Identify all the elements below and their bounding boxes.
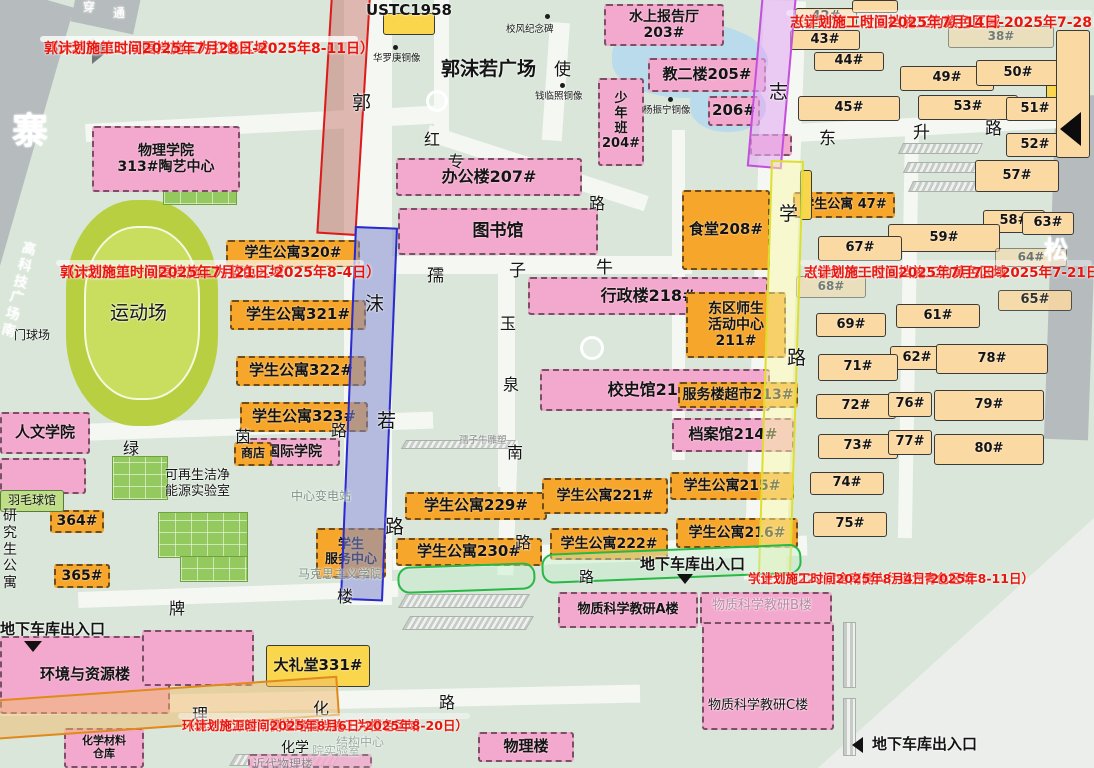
building-renwen-xueyuan: 人文学院 [0, 412, 90, 454]
building-gongyu-221: 学生公寓221# [542, 478, 668, 514]
building-gongyu-321: 学生公寓321# [230, 300, 366, 330]
sports-court [158, 512, 248, 558]
building-wuzhi-kexue-c-lou [702, 622, 834, 730]
road-lou: 楼 [337, 587, 353, 606]
building-shuishang-baogaoting-203: 水上报告厅 203# [604, 4, 724, 46]
building-wulilou: 物理楼 [478, 732, 574, 762]
construction-annotation-yellow: 志学路第一段围挡施工为黄色区域 （计划施工时间2025年7月7日-2025年7-… [800, 260, 1092, 266]
statue-marker [668, 97, 673, 102]
annotation-line: （计划施工时间2025年7月7日-2025年7-21日） [804, 263, 1094, 284]
road-hong: 红 [424, 130, 440, 149]
building-bld-75: 75# [813, 512, 887, 537]
road-guo: 郭 [352, 92, 371, 115]
building-bld-71: 71# [818, 354, 898, 381]
building-bld-364: 364# [50, 510, 104, 533]
road-char-zhai: 寨 [12, 110, 48, 153]
road-mo: 沫 [365, 293, 384, 316]
building-jiaoerlou-205: 教二楼205# [648, 58, 766, 92]
road-yin: 茵 [235, 427, 251, 446]
statue-marker [560, 83, 565, 88]
building-bld-53: 53# [918, 95, 1018, 120]
building-bld-44: 44# [814, 52, 884, 71]
road-dong: 东 [819, 129, 836, 149]
road-lu-8: 路 [439, 693, 455, 712]
annotation-line: （计划施工时间2025年7月28日-2025年8-11日） [44, 39, 374, 61]
road-quan: 泉 [503, 375, 519, 394]
building-gongyu-322: 学生公寓322# [236, 356, 366, 386]
zhongxin-biandianzhan: 中心变电站 [291, 489, 351, 503]
hualuogeng-tongxiang: 华罗庚铜像 [373, 53, 421, 64]
cheku-chukou-center: 地下车库出入口 [640, 555, 745, 573]
entrance-arrow-east [1060, 112, 1081, 146]
road-strip [542, 22, 570, 141]
road-lu-6: 路 [787, 347, 806, 370]
road-shi: 使 [554, 60, 571, 80]
building-bld-59: 59# [888, 224, 1000, 252]
annotation-line: （计划施工时间2025年7月14日-2025年7-28日） [790, 13, 1094, 35]
road-lu-7: 路 [985, 119, 1002, 139]
construction-annotation-orange: 环境与资源楼南侧道路围挡施工为橙色区域 （计划施工时间2025年8月6日-202… [178, 713, 470, 719]
road-lu-4: 路 [579, 568, 594, 586]
building-bld-65: 65# [998, 290, 1072, 311]
building-wuzhi-kexue-a-lou: 物质科学教研A楼 [558, 592, 698, 628]
building-bld-78: 78# [936, 344, 1048, 374]
statue-marker [393, 45, 398, 50]
ustc1958-label: USTC1958 [366, 1, 452, 19]
plaza-circle [580, 336, 604, 360]
building-shitang-208: 食堂208# [682, 190, 770, 270]
huaxueyuan-1: 化学 [281, 740, 309, 757]
building-bangonglou-207: 办公楼207# [396, 158, 582, 196]
jindai-wulilou: 近代物理楼 [253, 757, 313, 768]
road-ruo: 若 [377, 410, 396, 433]
road-lv: 绿 [123, 439, 139, 458]
annotation-line: （计划施工时间2025年8月6日-2025年8-20日） [182, 716, 468, 735]
building-bld-57: 57# [975, 160, 1059, 192]
xiaofeng-jinianbei: 校风纪念碑 [506, 24, 554, 35]
building-bld-67: 67# [818, 236, 902, 261]
road-zhi: 志 [769, 81, 788, 104]
construction-annotation-blue: 郭沫若路第一段围挡施工为蓝色区域 （计划施工时间2025年7月21日-2025年… [56, 260, 364, 266]
building-bld-80: 80# [934, 434, 1044, 465]
road-xue: 学 [779, 203, 798, 226]
building-wuli-xueyuan-313: 物理学院 313#陶艺中心 [92, 126, 240, 192]
road-pai: 牌 [169, 599, 185, 618]
building-tushuguan: 图书馆 [398, 208, 598, 255]
yundongchang: 运动场 [110, 302, 167, 325]
construction-annotation-purple: 志学路第二段围挡施工为紫色区域 （计划施工时间2025年7月14日-2025年7… [786, 10, 1092, 16]
huaxueyuan-2: 院实验室 [312, 744, 360, 758]
building-bld-79: 79# [934, 390, 1044, 421]
road-zi: 子 [509, 261, 526, 281]
menqiuchang: 门球场 [14, 328, 50, 342]
cheku-chukou-left: 地下车库出入口 [0, 620, 105, 638]
building-bld-50: 50# [976, 60, 1060, 86]
road-lu-5: 路 [331, 421, 347, 440]
qianlinzhao-tongxiang: 钱临照铜像 [535, 91, 583, 102]
road-gaokeji-guangchang-nan: 高 科 技 广 场 南 [0, 240, 38, 341]
ruziniu-diaosu: 孺子牛雕塑 [459, 435, 507, 446]
road-lu-1: 路 [385, 516, 404, 539]
construction-annotation-cyan: 学生公寓222宿舍南侧人行道为青色区域 （计划施工时间2025年8月4日-202… [744, 566, 1008, 572]
road-char-tong: 通 [113, 6, 125, 20]
road-lu-2: 路 [589, 194, 605, 213]
parking-shed [843, 622, 856, 688]
parking-shed [398, 594, 530, 608]
road-char-chuan: 穿 [83, 0, 95, 14]
wuzhi-b-lou-label: 物质科学教研B楼 [712, 598, 812, 614]
building-bld-pink-1 [0, 458, 86, 494]
guomoruo-guangchang: 郭沫若广场 [441, 58, 536, 81]
road-nan: 南 [507, 443, 523, 462]
road-niu: 牛 [596, 258, 613, 278]
building-bld-63: 63# [1022, 212, 1074, 235]
building-bld-72: 72# [816, 394, 896, 419]
wuzhi-c-lou-label: 物质科学教研C楼 [708, 698, 808, 714]
building-bld-pink-2 [142, 630, 254, 686]
yangzhenning-tongxiang: 杨振宁铜像 [643, 105, 691, 116]
building-bld-365: 365# [54, 564, 110, 588]
building-bld-69: 69# [816, 313, 886, 337]
building-gongyu-229: 学生公寓229# [405, 492, 547, 520]
plaza-circle [426, 90, 448, 112]
building-bld-73: 73# [818, 434, 898, 459]
parking-shed [898, 143, 983, 154]
annotation-line: （计划施工时间2025年7月21日-2025年8-4日） [60, 263, 380, 285]
road-area-northwest-road [71, 0, 141, 35]
cheku-chukou-bottomright: 地下车库出入口 [872, 735, 977, 753]
garage-arrow-center [677, 574, 693, 584]
road-ru: 孺 [427, 266, 444, 286]
building-shaonianban-204: 少 年 班 204# [598, 78, 644, 166]
garage-arrow-left [24, 641, 42, 652]
annotation-line: （计划施工时间2025年8月4日-2025年8-11日） [748, 569, 1034, 588]
sports-court [180, 556, 248, 582]
construction-annotation-red: 郭沫若路第二段围挡施工为红色区域 （计划施工时间2025年7月28日-2025年… [40, 36, 358, 42]
kezaisheng-shiyanshi: 可再生洁净 能源实验室 [165, 468, 230, 499]
building-bld-61: 61# [896, 304, 980, 328]
offmap-area [818, 518, 1094, 768]
garage-arrow-bottomright [852, 737, 863, 753]
building-bld-77: 77# [888, 430, 932, 455]
yanjiusheng-gongyu: 研 究 生 公 寓 [3, 508, 17, 592]
road-zhuan: 专 [448, 152, 464, 171]
campus-construction-map: 物理学院 313#陶艺中心水上报告厅 203#教二楼205#少 年 班 204#… [0, 0, 1094, 768]
road-lu-3: 路 [515, 533, 531, 552]
green-zone-sidewalk-1 [397, 562, 536, 594]
building-bld-76: 76# [888, 392, 932, 417]
road-sheng: 升 [913, 123, 930, 143]
sports-court [112, 456, 168, 500]
building-bld-45: 45# [798, 96, 900, 121]
makesizhuyi-xueyuan: 马克思主义学院 [298, 567, 382, 581]
parking-shed [402, 616, 534, 630]
building-bld-74: 74# [810, 472, 884, 495]
road-yu: 玉 [500, 314, 516, 333]
statue-marker [545, 14, 550, 19]
